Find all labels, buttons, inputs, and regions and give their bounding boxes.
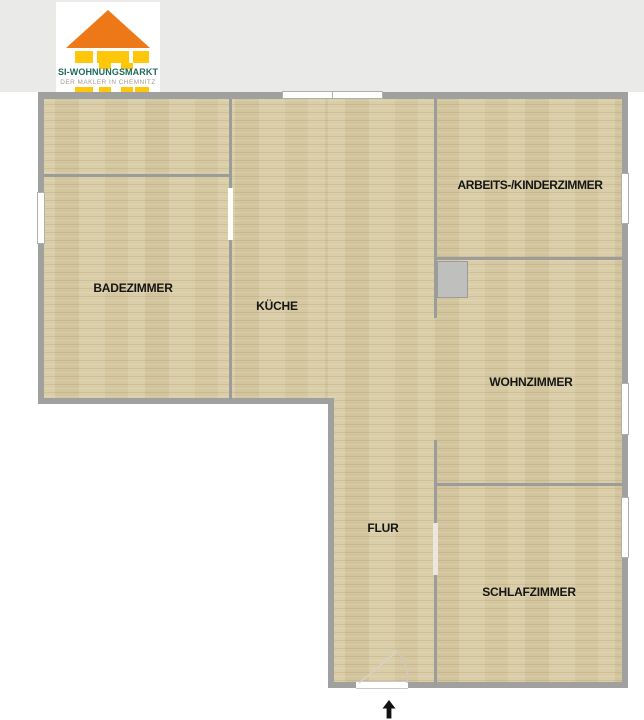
wall-kueche-left-lower xyxy=(229,240,232,401)
room-label-badezimmer: BADEZIMMER xyxy=(53,281,213,295)
floor-area-upper xyxy=(38,92,333,404)
outer-wall-bottom-left-block xyxy=(38,398,334,404)
room-label-schlafzimmer: SCHLAFZIMMER xyxy=(429,585,629,599)
door-badezimmer xyxy=(228,188,233,240)
house-roof-icon xyxy=(66,10,150,48)
wall-arbeitszimmer-bottom xyxy=(437,257,622,260)
utility-shaft xyxy=(437,261,468,298)
company-logo: SI-WOHNUNGSMARKT DER MAKLER IN CHEMNITZ xyxy=(56,2,160,99)
window-wohnzimmer xyxy=(621,383,629,435)
room-label-flur: FLUR xyxy=(323,521,443,535)
wall-flur-right-upper xyxy=(434,440,437,523)
room-label-wohnzimmer: WOHNZIMMER xyxy=(431,375,631,389)
house-body-notch xyxy=(93,51,97,63)
logo-subtitle: DER MAKLER IN CHEMNITZ xyxy=(56,79,160,86)
room-label-arbeits-kinderzimmer: ARBEITS-/KINDERZIMMER xyxy=(430,178,630,192)
wall-schlafzimmer-top xyxy=(437,483,622,486)
floorplan-page: SI-WOHNUNGSMARKT DER MAKLER IN CHEMNITZ … xyxy=(0,0,644,720)
window-kueche xyxy=(282,91,383,99)
window-mullion xyxy=(332,92,333,98)
outer-wall-flur-left xyxy=(328,398,334,688)
window-schlafzimmer xyxy=(621,497,629,558)
outer-wall-left xyxy=(38,92,44,404)
window-badezimmer xyxy=(37,192,45,244)
wall-kueche-left-upper xyxy=(229,99,232,188)
wall-badezimmer-top xyxy=(44,174,231,177)
logo-title: SI-WOHNUNGSMARKT xyxy=(56,67,160,77)
room-label-kueche: KÜCHE xyxy=(217,299,337,313)
house-body-icon xyxy=(75,51,149,63)
house-body-notch xyxy=(129,51,133,63)
entrance-arrow-icon xyxy=(381,700,397,719)
entrance-door-swing-icon xyxy=(352,625,412,685)
